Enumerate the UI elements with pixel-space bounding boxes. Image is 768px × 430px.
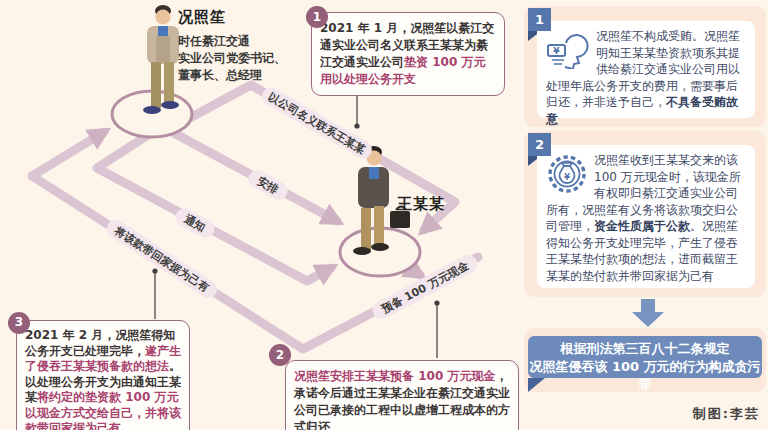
analysis-panel-2: 2 ¥ 况照笙收到王某某交来的该 100 万元现金时，该现金所有权即归綦江交通实… <box>524 131 766 297</box>
svg-text:¥: ¥ <box>564 173 570 182</box>
anti-corruption-case-infographic: 以公司名义联系王某某 安排 通知 将该款带回家据为己有 预备 100 万元现金 <box>0 0 768 430</box>
callout-3-badge: 3 <box>8 312 30 334</box>
conclusion-line-1: 根据刑法第三百八十二条规定 <box>528 340 762 358</box>
credit-byline: 制图:李芸 <box>620 405 760 423</box>
callout-2-badge: 2 <box>269 344 291 366</box>
down-arrow-icon <box>641 299 655 312</box>
flow-label-notify: 通知 <box>172 205 218 241</box>
conclusion-fold <box>528 378 545 392</box>
callout-1: 1 2021 年 1 月，况照笙以綦江交通实业公司名义联系王某某为綦江交通实业公… <box>311 12 505 96</box>
callout-2-text: 况照笙安排王某某预备 100 万元现金，承诺今后通过王某某企业在綦江交通实业公司… <box>294 368 510 430</box>
public-funds-icon: ¥ <box>546 153 588 195</box>
conclusion-line-2: 况照笙侵吞该 100 万元的行为构成贪污罪 <box>528 358 762 394</box>
callout-1-text: 2021 年 1 月，况照笙以綦江交通实业公司名义联系王某某为綦江交通实业公司垫… <box>320 20 496 88</box>
analysis-1-tag: 1 <box>528 8 551 31</box>
callout-2: 2 况照笙安排王某某预备 100 万元现金，承诺今后通过王某某企业在綦江交通实业… <box>285 360 519 430</box>
svg-text:将该款带回家据为己有: 将该款带回家据为己有 <box>111 223 211 294</box>
kuang-title: 时任綦江交通 实业公司党委书记、 董事长、总经理 <box>178 33 286 84</box>
flow-label-arrange: 安排 <box>245 167 290 203</box>
callout-1-badge: 1 <box>306 6 328 28</box>
money-thought-icon: ¥ <box>546 29 590 69</box>
kuang-name-label: 况照笙 <box>178 8 226 27</box>
conclusion-panel: 根据刑法第三百八十二条规定 况照笙侵吞该 100 万元的行为构成贪污罪 <box>524 328 766 392</box>
conclusion-box: 根据刑法第三百八十二条规定 况照笙侵吞该 100 万元的行为构成贪污罪 <box>528 336 762 378</box>
callout-3: 3 2021 年 2 月，况照笙得知公务开支已处理完毕，遂产生了侵吞王某某预备款… <box>16 320 190 430</box>
svg-text:¥: ¥ <box>553 46 560 56</box>
wang-name-label: 王某某 <box>397 195 445 214</box>
analysis-2-box: ¥ 况照笙收到王某某交来的该 100 万元现金时，该现金所有权即归綦江交通实业公… <box>537 145 755 288</box>
analysis-1-box: ¥ 况照笙不构成受贿。况照笙明知王某某垫资款项系其提供给綦江交通实业公司用以处理… <box>537 21 755 118</box>
analysis-2-tag: 2 <box>528 133 551 156</box>
analysis-panel-1: 1 ¥ 况照笙不构成受贿。况照笙明知王某某垫资款项系其提供给綦江交通实业公司用以… <box>524 6 766 127</box>
svg-text:以公司名义联系王某某: 以公司名义联系王某某 <box>266 90 369 157</box>
callout-3-text: 2021 年 2 月，况照笙得知公务开支已处理完毕，遂产生了侵吞王某某预备款的想… <box>25 328 181 430</box>
